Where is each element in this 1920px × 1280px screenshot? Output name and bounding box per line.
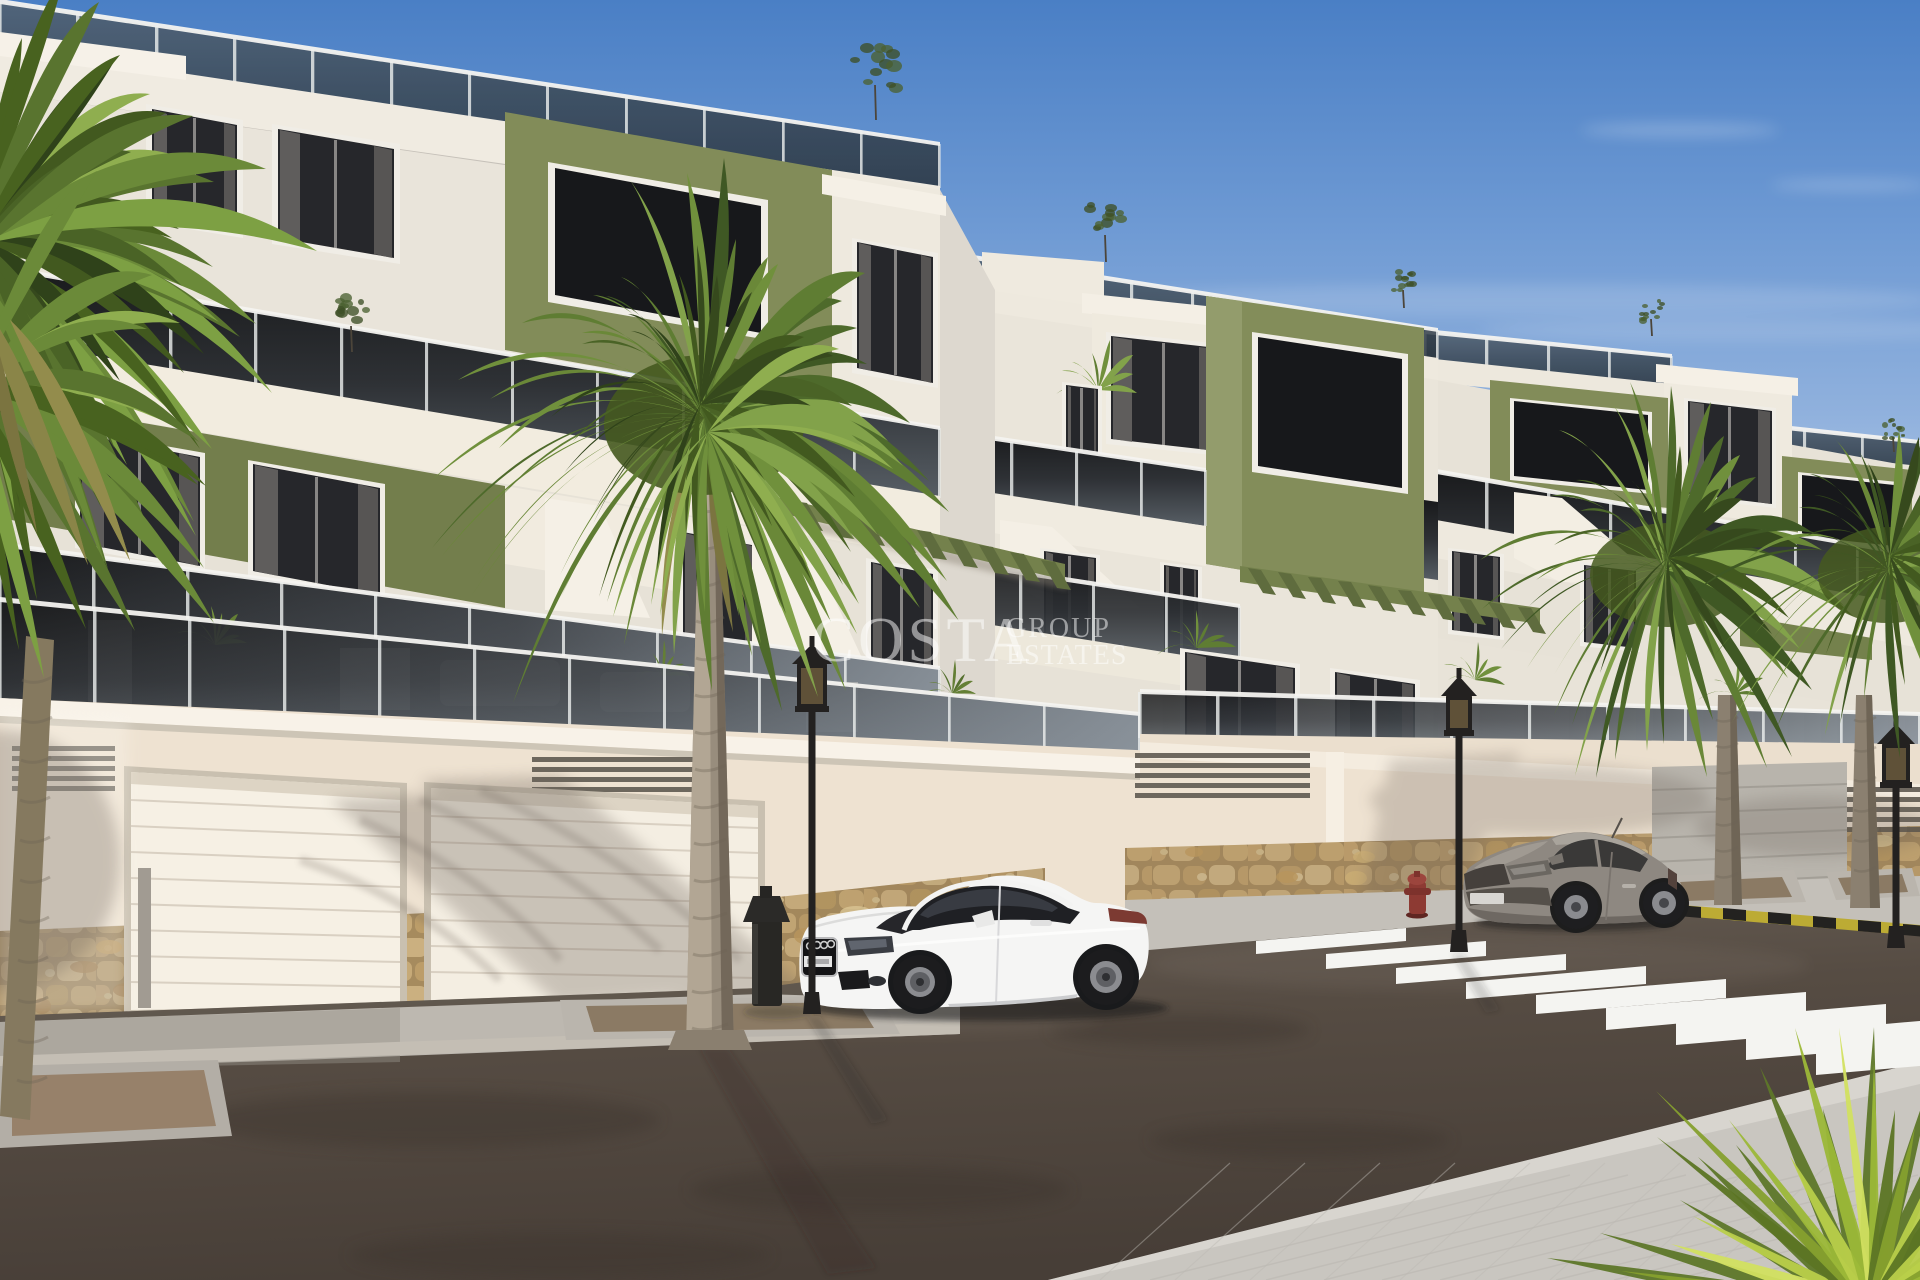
svg-text:ESTATES: ESTATES — [1006, 640, 1127, 671]
svg-text:COSTA: COSTA — [812, 605, 1034, 675]
